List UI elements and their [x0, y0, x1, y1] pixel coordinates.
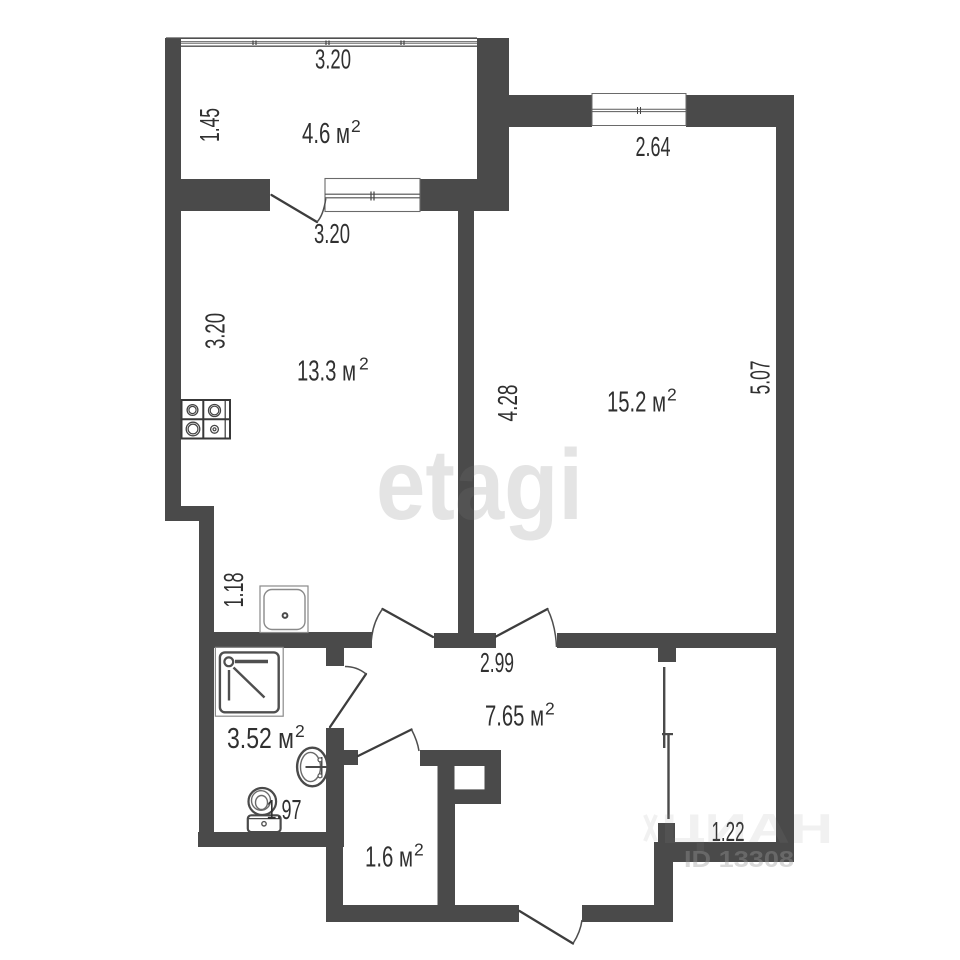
- svg-text:2.64: 2.64: [636, 131, 671, 162]
- svg-text:etagi: etagi: [376, 429, 583, 541]
- svg-text:1.6 м: 1.6 м: [365, 842, 413, 874]
- svg-text:2: 2: [351, 116, 361, 136]
- svg-text:15.2 м: 15.2 м: [607, 387, 666, 419]
- svg-text:2: 2: [667, 385, 677, 405]
- svg-text:2.99: 2.99: [480, 647, 514, 678]
- svg-text:7.65 м: 7.65 м: [485, 701, 544, 733]
- svg-text:1.45: 1.45: [194, 108, 225, 142]
- svg-text:2: 2: [545, 699, 555, 719]
- svg-text:2: 2: [359, 354, 369, 374]
- svg-text:3.20: 3.20: [314, 218, 350, 249]
- svg-text:13.3 м: 13.3 м: [297, 356, 356, 388]
- svg-text:2: 2: [414, 840, 424, 860]
- svg-text:3.52 м: 3.52 м: [227, 723, 294, 755]
- svg-text:4.28: 4.28: [492, 385, 523, 422]
- svg-text:4.6 м: 4.6 м: [302, 118, 350, 150]
- svg-text:1.18: 1.18: [218, 573, 249, 608]
- svg-text:2: 2: [295, 721, 305, 741]
- svg-text:3.20: 3.20: [200, 313, 231, 349]
- svg-text:5.07: 5.07: [745, 361, 776, 395]
- svg-text:ЦИАН: ЦИАН: [661, 805, 833, 852]
- svg-text:3.20: 3.20: [315, 44, 351, 75]
- svg-text:ID 13308: ID 13308: [684, 846, 794, 872]
- svg-text:1.97: 1.97: [267, 794, 302, 825]
